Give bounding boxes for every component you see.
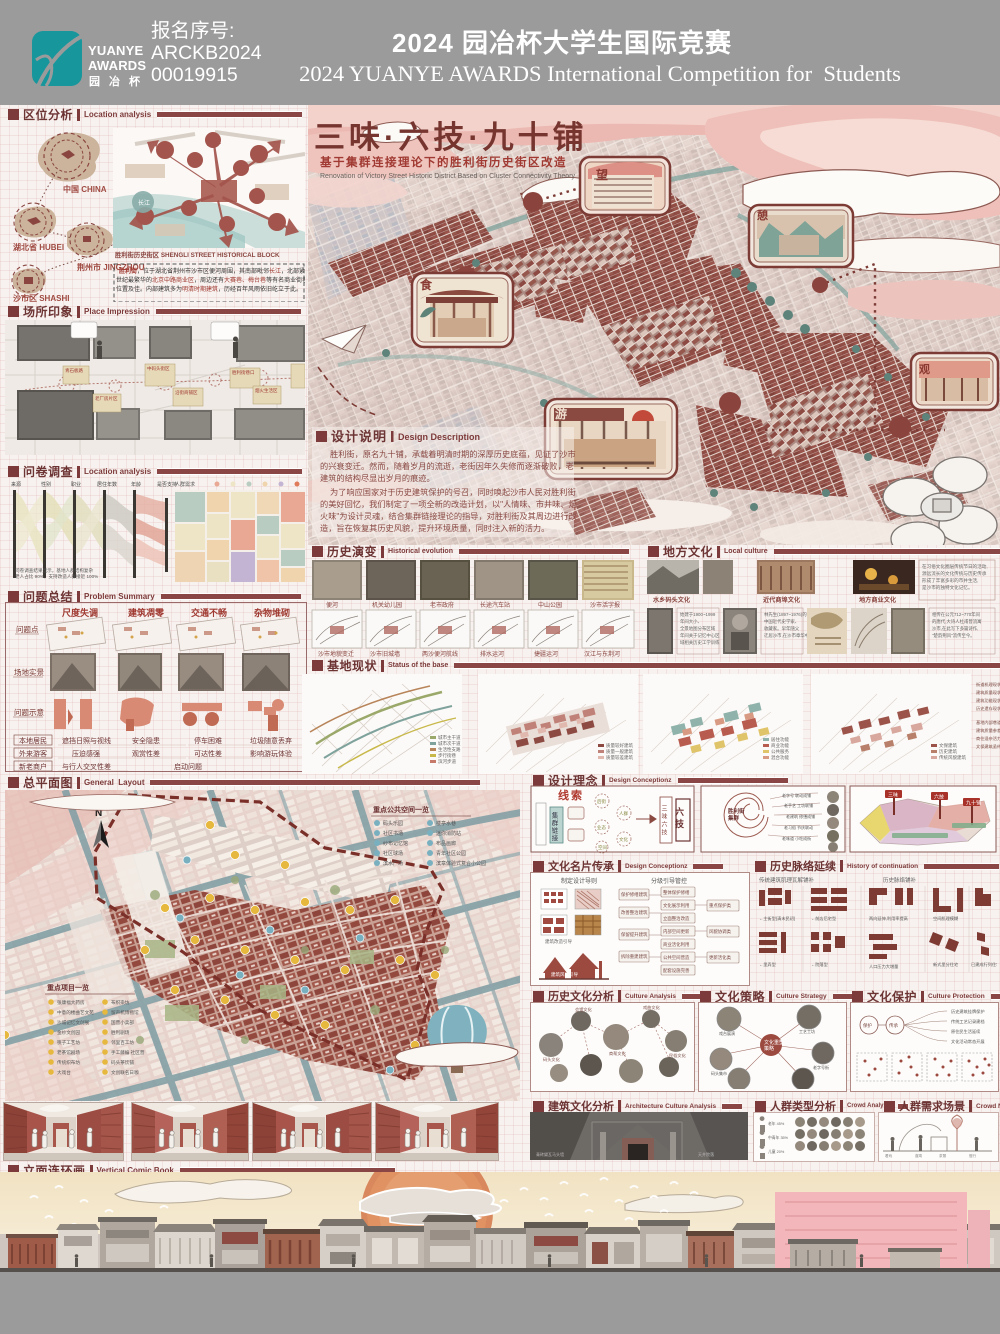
- svg-text:金纱文创园: 金纱文创园: [57, 1029, 80, 1036]
- svg-text:中意的楼曲艺文苑: 中意的楼曲艺文苑: [57, 1009, 94, 1016]
- svg-text:民俗文化: 民俗文化: [669, 1052, 687, 1059]
- svg-text:纱布记忆馆: 纱布记忆馆: [383, 840, 408, 847]
- svg-text:城市次干道: 城市次干道: [438, 740, 461, 747]
- svg-text:三味: 三味: [888, 792, 898, 799]
- svg-text:社区球场: 社区球场: [383, 850, 403, 857]
- svg-text:湖北省 HUBEI: 湖北省 HUBEI: [13, 242, 64, 252]
- svg-text:三味·六技·九十铺: 三味·六技·九十铺: [314, 120, 588, 155]
- svg-text:内部空间更新: 内部空间更新: [663, 928, 690, 935]
- svg-text:迷你消防站: 迷你消防站: [436, 830, 461, 837]
- svg-text:楼亭水巷: 楼亭水巷: [436, 820, 456, 827]
- svg-text:中码头街区: 中码头街区: [147, 365, 170, 372]
- svg-text:人口压力大增量: 人口压力大增量: [869, 963, 898, 970]
- svg-text:重点项目一览: 重点项目一览: [47, 983, 89, 992]
- svg-text:线索: 线索: [558, 788, 584, 802]
- svg-text:空间: 空间: [598, 844, 607, 851]
- svg-text:垃圾随意丢弃: 垃圾随意丢弃: [250, 736, 292, 745]
- svg-text:张康福大药房: 张康福大药房: [57, 999, 85, 1006]
- svg-text:望: 望: [596, 167, 608, 182]
- svg-text:遮挡日照与视线: 遮挡日照与视线: [62, 736, 111, 745]
- svg-text:滨水广场: 滨水广场: [383, 860, 403, 867]
- svg-text:便河: 便河: [326, 601, 338, 609]
- svg-text:胜利街巷口: 胜利街巷口: [232, 369, 255, 376]
- svg-text:的兴衰变迁。然而，随着岁月的流逝，老街因年久失修而逐渐破败，: 的兴衰变迁。然而，随着岁月的流逝，老街因年久失修而逐渐破败，老: [320, 461, 574, 471]
- svg-text:大戏台: 大戏台: [57, 1069, 71, 1076]
- svg-text:烟火生活区: 烟火生活区: [255, 387, 278, 394]
- svg-text:老茶馆剧场: 老茶馆剧场: [57, 1049, 80, 1056]
- svg-text:胜利街历史街区 SHENGLI STREET HISTOR: 胜利街历史街区 SHENGLI STREET HISTORICAL BLOCK: [115, 250, 280, 259]
- svg-text:新式里分住宅: 新式里分住宅: [933, 961, 958, 968]
- svg-text:启动问题: 启动问题: [174, 762, 202, 771]
- svg-text:文化展示利用: 文化展示利用: [663, 902, 689, 909]
- svg-text:配套设施完善: 配套设施完善: [663, 967, 690, 974]
- svg-text:在习俗文化圈层传统节日的活动,: 在习俗文化圈层传统节日的活动,: [922, 563, 988, 570]
- svg-text:性别: 性别: [41, 481, 51, 488]
- svg-text:保护修缮建筑: 保护修缮建筑: [621, 891, 648, 898]
- svg-text:年间关于记忆中心区: 年间关于记忆中心区: [680, 632, 720, 639]
- svg-text:码头文化: 码头文化: [543, 1056, 561, 1063]
- svg-text:重点保护类: 重点保护类: [709, 902, 732, 909]
- svg-text:更新活化类: 更新活化类: [709, 954, 732, 961]
- svg-text:建筑的结构尽显出岁月的痕迹。: 建筑的结构尽显出岁月的痕迹。: [320, 473, 435, 483]
- svg-text:形成了丰富多彩的市井生活,: 形成了丰富多彩的市井生活,: [922, 577, 978, 584]
- svg-text:文化活动常态开展: 文化活动常态开展: [951, 1038, 985, 1045]
- svg-text:质量一般建筑: 质量一般建筑: [606, 748, 633, 755]
- svg-text:建筑风貌引导: 建筑风貌引导: [551, 971, 578, 978]
- svg-text:杂物堆砌: 杂物堆砌: [254, 607, 290, 618]
- svg-text:重点公共空间一览: 重点公共空间一览: [373, 805, 429, 814]
- svg-text:商帮文化: 商帮文化: [609, 1050, 627, 1057]
- svg-text:观: 观: [919, 363, 930, 376]
- svg-text:沙市活字报: 沙市活字报: [590, 601, 620, 609]
- svg-text:←前店后宅型: ←前店后宅型: [811, 915, 836, 922]
- svg-text:沙市区 SHASHI: 沙市区 SHASHI: [13, 293, 69, 302]
- svg-text:会馆文化: 会馆文化: [575, 1006, 593, 1013]
- svg-text:相传在公元712~770年间: 相传在公元712~770年间: [932, 611, 980, 618]
- svg-text:中山公园: 中山公园: [538, 601, 562, 609]
- svg-text:憩: 憩: [757, 208, 768, 222]
- svg-text:地方商业文化: 地方商业文化: [859, 596, 897, 604]
- svg-text:居住功能: 居住功能: [771, 736, 789, 743]
- svg-text:是否支持: 是否支持: [157, 481, 177, 488]
- svg-text:社区书场: 社区书场: [383, 830, 403, 837]
- svg-text:年龄: 年龄: [131, 481, 141, 488]
- svg-text:戏曲文化: 戏曲文化: [643, 1004, 661, 1011]
- svg-text:生活性支路: 生活性支路: [438, 746, 461, 753]
- svg-text:空间肌理模糊: 空间肌理模糊: [933, 915, 958, 922]
- svg-text:老人占比 90%，支持改造人群接近 100%: 老人占比 90%，支持改造人群接近 100%: [15, 573, 98, 580]
- svg-text:码头茶饮铺: 码头茶饮铺: [111, 1059, 134, 1066]
- svg-text:场地实景: 场地实景: [14, 667, 44, 677]
- svg-text:外来游客: 外来游客: [19, 749, 47, 758]
- svg-text:本地居民: 本地居民: [19, 736, 47, 745]
- svg-text:码头集市: 码头集市: [711, 1070, 727, 1076]
- svg-text:与行人交叉性差: 与行人交叉性差: [62, 762, 111, 771]
- svg-text:人群需求: 人群需求: [175, 481, 195, 488]
- svg-text:老字号 联动成铺: 老字号 联动成铺: [782, 792, 811, 798]
- svg-text:老建筑 修缮成铺: 老建筑 修缮成铺: [786, 813, 815, 819]
- svg-text:历史遗存现状分析: 历史遗存现状分析: [976, 705, 1000, 712]
- svg-text:茶憩: 茶憩: [939, 1153, 947, 1158]
- svg-text:位置及佳。内部建筑多为明清时期建筑，历经百年风雨依旧屹立于此: 位置及佳。内部建筑多为明清时期建筑，历经百年风雨依旧屹立于此。: [116, 285, 302, 293]
- svg-text:是沙市的独特文化记忆。: 是沙市的独特文化记忆。: [922, 584, 973, 591]
- svg-text:人群: 人群: [619, 810, 628, 817]
- svg-text:制定设计导则: 制定设计导则: [561, 877, 597, 885]
- svg-text:←院落型: ←院落型: [811, 961, 828, 968]
- svg-text:文创联名日咖: 文创联名日咖: [111, 1069, 139, 1076]
- svg-text:青石板路: 青石板路: [65, 367, 83, 374]
- svg-text:中国近代史学家、: 中国近代史学家、: [764, 618, 799, 625]
- svg-text:传统工艺记录建档: 传统工艺记录建档: [951, 1018, 985, 1025]
- svg-text:国营小卖部: 国营小卖部: [111, 1019, 134, 1026]
- svg-text:老手艺 工坊联铺: 老手艺 工坊联铺: [784, 802, 813, 808]
- svg-text:整体保护修缮: 整体保护修缮: [663, 889, 690, 896]
- svg-text:戏台展演: 戏台展演: [719, 1030, 735, 1036]
- svg-text:遛弯: 遛弯: [915, 1153, 923, 1158]
- svg-text:立面整治改造: 立面整治改造: [663, 915, 690, 922]
- svg-text:拆除重建建筑: 拆除重建建筑: [621, 953, 648, 960]
- svg-text:公共服务: 公共服务: [771, 748, 789, 755]
- svg-text:问题点: 问题点: [16, 625, 39, 634]
- svg-text:儿童 20%: 儿童 20%: [768, 1149, 785, 1154]
- svg-text:近代商埠文化: 近代商埠文化: [763, 596, 801, 604]
- svg-text:基于集群连接理论下的胜利街历史街区改造: 基于集群连接理论下的胜利街历史街区改造: [319, 155, 567, 169]
- svg-text:两向延伸,利用率提高: 两向延伸,利用率提高: [869, 915, 908, 922]
- svg-text:手工藤编 社区营: 手工藤编 社区营: [111, 1049, 145, 1056]
- svg-text:改善整治建筑: 改善整治建筑: [621, 909, 648, 916]
- svg-text:历史脉络铺补: 历史脉络铺补: [883, 876, 917, 884]
- svg-text:六技: 六技: [934, 794, 944, 801]
- svg-text:老习俗 节庆联动: 老习俗 节庆联动: [784, 824, 813, 830]
- svg-text:布品画廊: 布品画廊: [436, 840, 456, 847]
- svg-text:老年 45%: 老年 45%: [768, 1121, 785, 1126]
- svg-text:步行街巷: 步行街巷: [438, 752, 456, 759]
- svg-text:质量较差建筑: 质量较差建筑: [606, 754, 633, 761]
- svg-text:策略: 策略: [764, 1045, 774, 1052]
- svg-text:老厂房片区: 老厂房片区: [95, 395, 118, 402]
- svg-text:年间大小、: 年间大小、: [680, 618, 702, 625]
- svg-text:安全隐患: 安全隐患: [132, 736, 160, 745]
- svg-text:已建成行列住宅: 已建成行列住宅: [971, 961, 997, 968]
- svg-text:长江: 长江: [138, 199, 150, 207]
- svg-text:←里弄型: ←里弄型: [759, 961, 776, 968]
- svg-text:留声机博物馆: 留声机博物馆: [111, 1009, 139, 1016]
- svg-text:商住混杂活力不足: 商住混杂活力不足: [976, 735, 1000, 742]
- svg-text:影响游玩体验: 影响游玩体验: [250, 749, 292, 758]
- svg-text:文保建筑亟待修缮: 文保建筑亟待修缮: [976, 743, 1000, 750]
- svg-text:青年社区公园: 青年社区公园: [436, 850, 466, 857]
- svg-text:交通不畅: 交通不畅: [191, 607, 227, 618]
- svg-text:停车困难: 停车困难: [194, 736, 222, 745]
- svg-text:建筑功能现状分析: 建筑功能现状分析: [976, 697, 1000, 704]
- svg-text:迁居沙市,在沙市章华中学: 迁居沙市,在沙市章华中学: [764, 632, 814, 639]
- svg-text:食: 食: [419, 277, 433, 292]
- svg-text:青砖黛瓦马头墙: 青砖黛瓦马头墙: [536, 1151, 564, 1157]
- svg-text:集群: 集群: [727, 814, 740, 822]
- svg-text:传统织布坊: 传统织布坊: [57, 1059, 80, 1066]
- svg-text:建筑质量现状分析: 建筑质量现状分析: [976, 689, 1000, 696]
- svg-text:天井院落: 天井院落: [698, 1151, 714, 1157]
- svg-text:设计说明: 设计说明: [331, 429, 387, 444]
- svg-text:风貌协调类: 风貌协调类: [709, 928, 732, 935]
- svg-text:水乡码头文化: 水乡码头文化: [653, 596, 691, 604]
- svg-text:胜利街: 胜利街: [727, 807, 745, 815]
- svg-text:老字号街: 老字号街: [813, 1064, 829, 1070]
- svg-text:沙市,在此写下多篇诗作,: 沙市,在此写下多篇诗作,: [932, 625, 978, 632]
- svg-text:商业活化利用: 商业活化利用: [663, 941, 689, 948]
- svg-text:机关幼儿园: 机关幼儿园: [372, 601, 402, 609]
- svg-text:公共空间营造: 公共空间营造: [663, 954, 690, 961]
- svg-text:文保建筑: 文保建筑: [939, 742, 957, 749]
- svg-text:沿街商铺区: 沿街商铺区: [175, 389, 198, 396]
- svg-text:质量较好建筑: 质量较好建筑: [606, 742, 633, 749]
- svg-text:观赏性差: 观赏性差: [132, 749, 160, 758]
- svg-text:建筑质量参差不齐: 建筑质量参差不齐: [976, 727, 1000, 734]
- svg-text:世纪最繁华的北京中路商业区，周边还有大赛巷、梅台巷等有名商业: 世纪最繁华的北京中路商业区，周边还有大赛巷、梅台巷等有名商业街巷，地理: [116, 276, 305, 284]
- svg-text:城市主干道: 城市主干道: [438, 734, 461, 741]
- svg-text:六技: 六技: [674, 806, 685, 831]
- svg-text:胜利剧场: 胜利剧场: [111, 1029, 130, 1036]
- svg-text:可达性差: 可达性差: [194, 749, 222, 758]
- svg-text:基地内部巷道狭窄: 基地内部巷道狭窄: [976, 719, 1000, 726]
- svg-text:九十铺: 九十铺: [966, 800, 981, 807]
- svg-text:滨章体验式复合小公园: 滨章体验式复合小公园: [436, 860, 486, 867]
- svg-text:胜利街，位于湖北省荆州市沙市区便河周围，其南部毗邻长江，北部: 胜利街，位于湖北省荆州市沙市区便河周围，其南部毗邻长江，北部紧靠上: [118, 267, 305, 275]
- svg-text:老市政府: 老市政府: [430, 601, 454, 609]
- svg-text:新老商户: 新老商户: [19, 762, 47, 771]
- svg-text:邻里百工坊: 邻里百工坊: [111, 1039, 134, 1046]
- svg-text:沙城记忆文创展: 沙城记忆文创展: [57, 1019, 90, 1026]
- svg-text:尺度失调: 尺度失调: [62, 607, 98, 618]
- svg-text:职业: 职业: [71, 481, 81, 488]
- svg-text:分级引导管控: 分级引导管控: [651, 877, 687, 885]
- svg-text:Design Description: Design Description: [398, 432, 480, 442]
- svg-text:码头乐园: 码头乐园: [383, 820, 403, 827]
- svg-text:三味六技: 三味六技: [660, 805, 667, 837]
- svg-text:传统风貌建筑: 传统风貌建筑: [939, 754, 966, 761]
- svg-text:居住年数: 居住年数: [97, 481, 117, 488]
- svg-text:的唐代,大诗人杜甫曾流寓: 的唐代,大诗人杜甫曾流寓: [932, 618, 982, 625]
- svg-text:Renovation of Victory Street H: Renovation of Victory Street Historic Di…: [320, 173, 575, 180]
- svg-text:老味道 小吃成街: 老味道 小吃成街: [782, 835, 811, 841]
- svg-text:火味"为设计灵魂，结合集群链接理论的指导，对胜利街及其周边进: 火味"为设计灵魂，结合集群链接理论的指导，对胜利街及其周边进行改: [320, 511, 577, 521]
- svg-text:长途汽车站: 长途汽车站: [480, 601, 510, 609]
- svg-text:布织染坊: 布织染坊: [111, 999, 130, 1006]
- svg-text:传统建筑肌理瓦解铺补: 传统建筑肌理瓦解铺补: [759, 876, 815, 884]
- svg-text:中青年 35%: 中青年 35%: [768, 1135, 789, 1140]
- svg-text:筷子工艺坊: 筷子工艺坊: [57, 1039, 80, 1046]
- svg-text:游: 游: [555, 406, 567, 421]
- svg-text:域相关历史工学训练: 域相关历史工学训练: [680, 639, 720, 646]
- svg-text:历史建筑挂牌保护: 历史建筑挂牌保护: [951, 1008, 985, 1015]
- svg-text:保护: 保护: [863, 1022, 872, 1029]
- svg-text:街道机理现状分析: 街道机理现状分析: [976, 681, 1000, 688]
- svg-text:保留提升建筑: 保留提升建筑: [621, 931, 648, 938]
- svg-text:来源: 来源: [11, 481, 21, 488]
- svg-text:文化重塑: 文化重塑: [764, 1039, 784, 1046]
- svg-text:文化: 文化: [619, 836, 628, 843]
- svg-text:压迫感强: 压迫感强: [72, 749, 100, 758]
- svg-text:始建于1900~1999: 始建于1900~1999: [680, 611, 716, 618]
- svg-text:建筑凋零: 建筑凋零: [128, 607, 165, 618]
- svg-text:胜利街，原名九十铺，承载着明清时期的深厚历史底蕴，见证了沙市: 胜利街，原名九十铺，承载着明清时期的深厚历史底蕴，见证了沙市: [330, 449, 576, 459]
- svg-text:源远流长的文化传统与历史传承: 源远流长的文化传统与历史传承: [922, 570, 987, 577]
- svg-text:造，旨在恢复其历史风貌，提升环境质量，同时注入新的活力。: 造，旨在恢复其历史风貌，提升环境质量，同时注入新的活力。: [320, 523, 549, 533]
- svg-text:慢行: 慢行: [969, 1153, 977, 1158]
- svg-text:工艺工坊: 工艺工坊: [799, 1028, 815, 1034]
- svg-text:为了响应国家对于历史建筑保护的号召，同时唤起沙市人民对胜利街: 为了响应国家对于历史建筑保护的号召，同时唤起沙市人民对胜利街: [330, 487, 576, 497]
- svg-text:问题示意: 问题示意: [14, 707, 44, 717]
- svg-text:历史建筑: 历史建筑: [939, 748, 957, 755]
- svg-text:中国 CHINA: 中国 CHINA: [63, 184, 107, 194]
- svg-text:商业功能: 商业功能: [771, 742, 789, 749]
- svg-text:业态: 业态: [597, 824, 606, 830]
- svg-text:问卷调查结果显示，基地人群结构复杂: 问卷调查结果显示，基地人群结构复杂: [15, 567, 94, 574]
- svg-text:原住民生活延续: 原住民生活延续: [951, 1028, 980, 1035]
- svg-text:收藏家。早年随父: 收藏家。早年随父: [764, 625, 800, 632]
- svg-text:混合功能: 混合功能: [771, 754, 789, 761]
- svg-text:看戏: 看戏: [885, 1153, 893, 1158]
- svg-text:建筑改造引导: 建筑改造引导: [545, 938, 572, 945]
- svg-text:滨河步道: 滨河步道: [438, 758, 456, 765]
- svg-text:后街: 后街: [597, 798, 606, 805]
- svg-text:←主街型(清末民初): ←主街型(清末民初): [759, 915, 796, 922]
- svg-text:"楚韵荆风"流传至今。: "楚韵荆风"流传至今。: [932, 632, 975, 639]
- svg-text:传承: 传承: [889, 1022, 898, 1029]
- svg-text:的美好回忆，我们制定了一项全新的改造计划，以"人情味、市井味: 的美好回忆，我们制定了一项全新的改造计划，以"人情味、市井味、烟: [320, 499, 577, 509]
- svg-text:全景地图分布区域: 全景地图分布区域: [680, 625, 716, 632]
